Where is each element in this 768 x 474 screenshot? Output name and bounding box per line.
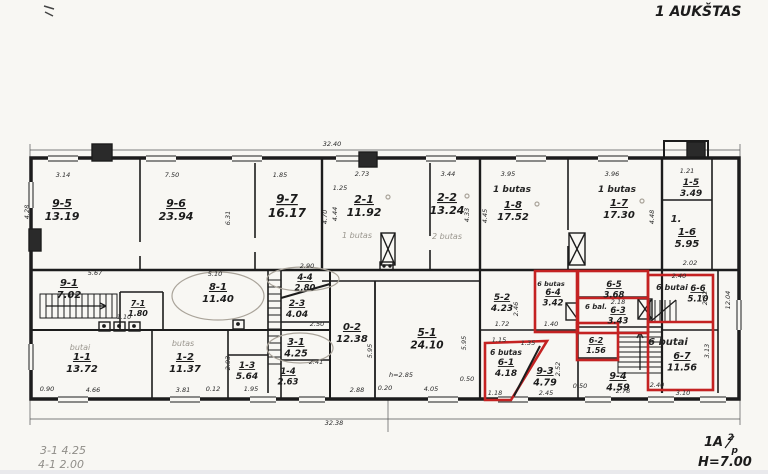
room-code-label: 6-5 — [606, 280, 621, 290]
room-code-label: 9-1 — [60, 278, 78, 289]
dimension-label: 5.67 — [88, 269, 103, 277]
dimension-label: 2.40 — [672, 272, 686, 280]
dimension-label: 2.18 — [611, 298, 625, 306]
dimension-label: 12.04 — [724, 291, 732, 310]
room-area-label: 1.56 — [586, 346, 606, 355]
dimension-label: 1.95 — [244, 385, 258, 393]
room-area-label: 3.49 — [680, 189, 702, 199]
room-area-label: 24.10 — [410, 340, 443, 352]
dimension-label: 2.88 — [350, 386, 364, 394]
dimension-label: 0.12 — [206, 385, 220, 393]
room-code-label: 5-1 — [418, 327, 437, 339]
room-code-label: 6-2 — [589, 336, 604, 345]
room-area-label: 11.40 — [202, 294, 234, 305]
room-code-label: 1-7 — [610, 198, 628, 209]
pencil-annotation: 6 butai — [648, 337, 688, 348]
dimension-label: h=2.85 — [389, 371, 413, 379]
dimension-label: 0.50 — [460, 375, 474, 383]
pencil-note-1: 3-1 4.25 — [40, 444, 86, 457]
pencil-note-2: 4-1 2.00 — [38, 458, 84, 471]
dimension-label: 3.10 — [676, 389, 690, 397]
room-code-label: 1-3 — [239, 361, 255, 371]
room-area-label: 13.72 — [66, 364, 98, 375]
room-area-label: 4.79 — [532, 378, 557, 389]
dimension-label: 2.73 — [355, 170, 369, 178]
room-area-label: 12.38 — [336, 334, 368, 345]
dimension-label: 1.15 — [492, 336, 506, 344]
room-code-label: 6-7 — [673, 351, 691, 362]
dimension-label: 5.95 — [366, 344, 374, 358]
room-code-label: 5-2 — [494, 293, 510, 303]
dimension-label: 3.96 — [605, 170, 619, 178]
dimension-label: 0.20 — [378, 384, 392, 392]
dimension-label: 1.72 — [495, 320, 509, 328]
dimension-label: 6.31 — [224, 211, 232, 225]
dimension-label: 2.90 — [300, 262, 314, 270]
pencil-annotation: 6 butas — [537, 280, 565, 288]
dimension-label: 4.05 — [424, 385, 438, 393]
dimension-label: 1.35 — [521, 339, 535, 347]
pencil-annotation: 2 butas — [432, 232, 462, 241]
pencil-annotation: 6 bal. — [585, 303, 607, 311]
dimension-label: 3.95 — [501, 170, 515, 178]
dimension-label: 2.46 — [512, 302, 520, 316]
room-area-label: 2.63 — [278, 378, 299, 388]
dimension-label: 3.44 — [441, 170, 455, 178]
room-code-label: 9-4 — [609, 371, 627, 382]
room-code-label: 9-6 — [166, 197, 186, 210]
pencil-annotation: butas — [172, 339, 194, 348]
room-area-label: 4.25 — [283, 349, 308, 360]
dimension-label: 2.78 — [616, 387, 630, 395]
room-code-label: 4-4 — [296, 273, 312, 283]
dimension-label: 5.10 — [208, 270, 222, 278]
room-area-label: 13.19 — [45, 210, 80, 223]
pencil-annotation: 1. — [671, 214, 682, 225]
room-code-label: 1-1 — [73, 352, 91, 363]
scanned-floor-plan-page: 9-513.199-623.949-716.172-111.922-213.24… — [0, 0, 768, 474]
room-code-label: 1-8 — [504, 200, 522, 211]
dimension-label: 0.50 — [573, 382, 587, 390]
dimension-label: 4.66 — [86, 386, 100, 394]
room-code-label: 6-4 — [545, 288, 560, 298]
room-code-label: 9-5 — [52, 197, 72, 210]
room-area-label: 4.23 — [490, 304, 513, 314]
scan-edge-artifact — [0, 470, 768, 474]
room-code-label: 9-3 — [536, 366, 554, 377]
dimension-label: 2.41 — [309, 358, 323, 366]
dimension-label: 3.13 — [703, 344, 711, 358]
room-code-label: 2-2 — [437, 191, 457, 204]
room-code-label: 1-2 — [176, 352, 194, 363]
room-area-label: 3.43 — [608, 317, 629, 327]
dimension-label: 7.50 — [165, 171, 179, 179]
dimension-label: 4.33 — [463, 208, 471, 222]
room-code-label: 1-5 — [683, 178, 699, 188]
dimension-label: 4.44 — [331, 207, 339, 221]
dimension-label: 1.40 — [544, 320, 558, 328]
dimension-label: 4.28 — [23, 205, 31, 219]
room-area-label: 2.80 — [295, 284, 316, 294]
dimension-label: 3.81 — [176, 386, 190, 394]
pencil-annotation: butai — [70, 343, 91, 352]
room-code-label: 6-3 — [610, 306, 625, 316]
room-area-label: 11.56 — [667, 363, 697, 374]
room-code-label: 8-1 — [209, 282, 227, 293]
height-note: H=7.00 — [698, 455, 752, 470]
room-area-label: 13.24 — [430, 204, 465, 217]
room-area-label: 11.37 — [169, 364, 201, 375]
room-code-label: 2-1 — [354, 193, 374, 206]
pencil-annotation: 6 butai — [656, 283, 688, 292]
room-code-label: 1-4 — [280, 367, 295, 377]
room-area-label: 11.92 — [347, 206, 382, 219]
dimension-label: 1.10 — [117, 313, 131, 321]
dimension-label: 2.50 — [310, 320, 324, 328]
pencil-annotation: 1 butas — [493, 185, 532, 195]
room-area-label: 17.30 — [603, 210, 635, 221]
dimension-label: 1.85 — [273, 171, 287, 179]
dimension-label: 32.40 — [323, 140, 342, 148]
room-area-label: 16.17 — [268, 206, 307, 220]
room-area-label: 5.95 — [675, 239, 700, 250]
dimension-label: 1.21 — [680, 167, 694, 175]
room-area-label: 3.42 — [543, 299, 564, 309]
dimension-label: 2.40 — [650, 381, 664, 389]
room-code-label: 2-3 — [289, 299, 305, 309]
dimension-label: 4.48 — [648, 210, 656, 224]
room-area-label: 4.18 — [494, 369, 517, 379]
room-area-label: 4.04 — [285, 310, 308, 320]
dimension-label: 1.18 — [488, 389, 502, 397]
pencil-annotation: 1 butas — [598, 185, 637, 195]
dimension-label: 4.45 — [481, 209, 489, 223]
room-code-label: 6-1 — [498, 358, 514, 368]
dimension-label: 1.25 — [333, 184, 347, 192]
floor-plan-drawing: 9-513.199-623.949-716.172-111.922-213.24… — [0, 0, 768, 474]
room-code-label: 3-1 — [287, 337, 304, 348]
room-area-label: 17.52 — [497, 212, 529, 223]
mark-main: 1A — [704, 435, 723, 450]
room-area-label: 5.64 — [236, 372, 258, 382]
dimension-label: 5.95 — [460, 336, 468, 350]
dimension-label: 2.82 — [701, 291, 709, 305]
dimension-label: 32.38 — [325, 419, 344, 427]
room-code-label: 0-2 — [343, 322, 361, 333]
room-code-label: 9-7 — [276, 192, 298, 206]
dimension-label: 3.14 — [56, 171, 70, 179]
dimension-label: 2.45 — [539, 389, 553, 397]
floor-title: 1 AUKŠTAS — [655, 2, 742, 20]
dimension-label: 2.52 — [554, 362, 562, 376]
room-code-label: 1-6 — [678, 227, 696, 238]
dimension-label: 4.70 — [321, 210, 329, 224]
pencil-annotation: 1 butas — [342, 231, 372, 240]
room-area-label: 7.02 — [57, 290, 82, 301]
dimension-label: 2.02 — [683, 259, 697, 267]
dimension-label: 0.90 — [40, 385, 54, 393]
dimension-label: 2.93 — [224, 356, 232, 370]
pencil-annotation: 6 butas — [490, 348, 522, 357]
room-code-label: 7-1 — [131, 299, 145, 308]
room-area-label: 23.94 — [159, 210, 194, 223]
